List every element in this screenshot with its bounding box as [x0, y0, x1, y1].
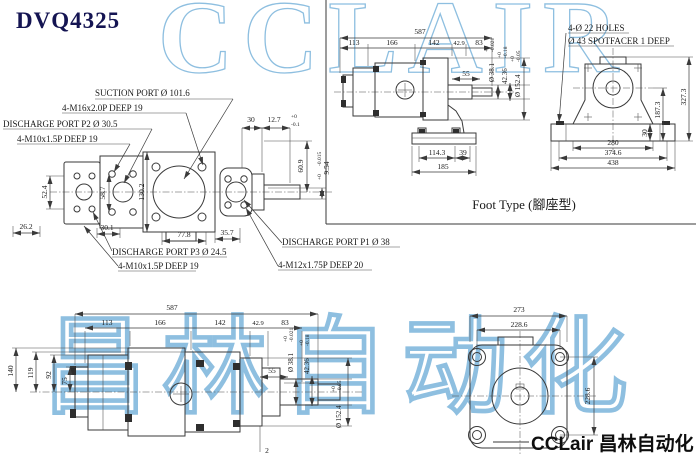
dim-spigot-side-hi: +0 — [510, 56, 516, 62]
dim-587-bottom: 587 — [166, 303, 178, 312]
dim-327-3: 327.3 — [679, 88, 688, 105]
dim-113-side: 113 — [349, 38, 360, 47]
label-spotface: Ø 43 SPOTFACER 1 DEEP — [568, 36, 670, 46]
label-holes: 4-Ø 22 HOLES — [568, 23, 625, 33]
foot-front-view: 4-Ø 22 HOLES Ø 43 SPOTFACER 1 DEEP — [551, 23, 675, 152]
dim-shaft-dia-bottom: Ø 38.1 — [287, 352, 295, 372]
dim-shaft-dia-side: Ø 38.1 — [488, 62, 496, 82]
flange-view-dimensions: 273 228.6 228.6 — [470, 305, 598, 442]
label-discharge-p1: DISCHARGE PORT P1 Ø 38 — [282, 237, 390, 247]
dim-26-2: 26.2 — [19, 222, 32, 231]
dim-spigot-side: Ø 152.4 — [514, 74, 522, 97]
dim-55-side: 55 — [462, 69, 470, 78]
dim-92: 92 — [44, 371, 53, 379]
dim-228-6-top: 228.6 — [511, 320, 528, 329]
dim-75: 75 — [60, 377, 69, 385]
label-p2-bolts: 4-M10x1.5P DEEP 19 — [17, 134, 98, 144]
foot-front-dimensions: 280 374.6 438 30 187.3 327.3 — [551, 57, 693, 171]
dim-shaft-dia-side-lo: -0.021 — [490, 38, 496, 52]
dim-166-side: 166 — [386, 38, 398, 47]
dim-12-7-tol-hi: +0 — [291, 114, 297, 120]
dim-77-8: 77.8 — [177, 230, 190, 239]
dim-52-4: 52.4 — [40, 185, 49, 198]
dim-30: 30 — [247, 115, 255, 124]
dim-9-54-tol-lo: -0.015 — [317, 152, 323, 166]
foot-side-view — [326, 0, 696, 224]
front-view — [50, 152, 332, 241]
dim-42-9-side: 42.9 — [453, 40, 464, 47]
dim-key-side: 42.36 — [501, 68, 509, 84]
company-logo-text: CCLair 昌林自动化 — [531, 429, 694, 456]
dim-spigot-bottom-hi: +0 — [331, 386, 337, 392]
dim-113-bottom: 113 — [102, 318, 113, 327]
dim-58-7: 58.7 — [98, 186, 107, 199]
dim-key-bottom-lo: -0.18 — [305, 334, 311, 346]
dim-key-side-lo: -0.18 — [503, 46, 509, 58]
dim-438: 438 — [607, 158, 619, 167]
dim-228-6-right: 228.6 — [583, 387, 592, 404]
dim-119: 119 — [26, 367, 35, 378]
drawing-canvas: 52.4 26.2 30.1 58.7 130.2 77.8 35.7 30 1… — [0, 0, 696, 466]
label-discharge-p2: DISCHARGE PORT P2 Ø 30.5 — [3, 119, 118, 129]
dim-key-bottom: 42.36 — [303, 358, 311, 374]
dim-55-bottom: 55 — [268, 366, 276, 375]
dim-spigot-bottom-lo: -0.05 — [337, 380, 343, 392]
dim-60-9: 60.9 — [296, 159, 305, 172]
dim-273: 273 — [513, 305, 525, 314]
label-p1-bolts: 4-M12x1.75P DEEP 20 — [278, 260, 364, 270]
dim-374-6: 374.6 — [605, 148, 622, 157]
dim-12-7-tol-lo: -0.1 — [291, 122, 300, 128]
dim-83-side: 83 — [475, 38, 483, 47]
dim-30-base: 30 — [640, 129, 649, 137]
dim-185: 185 — [437, 162, 449, 171]
dim-140: 140 — [6, 365, 15, 377]
dim-114-3: 114.3 — [429, 148, 446, 157]
dim-35-7: 35.7 — [220, 228, 233, 237]
label-discharge-p3: DISCHARGE PORT P3 Ø 24.5 — [112, 247, 227, 257]
dim-9-54-tol-hi: +0 — [317, 174, 323, 180]
dim-83-bottom: 83 — [281, 318, 289, 327]
dim-key-side-hi: +0 — [497, 52, 503, 58]
dim-shaft-dia-bottom-hi: +0 — [283, 336, 289, 342]
dim-2: 2 — [265, 446, 269, 455]
foot-type-caption: Foot Type (腳座型) — [472, 197, 576, 212]
dim-spigot-side-lo: -0.05 — [516, 50, 522, 62]
drawing-page: CCLAIR 昌林自动化 DVQ4325 — [0, 0, 696, 466]
label-p3-bolts: 4-M10x1.5P DEEP 19 — [118, 261, 199, 271]
dim-key-bottom-hi: +0 — [299, 340, 305, 346]
label-suction-port: SUCTION PORT Ø 101.6 — [95, 88, 190, 98]
dim-39: 39 — [459, 148, 467, 157]
dim-shaft-dia-side-hi: +0 — [484, 46, 490, 52]
dim-spigot-bottom: Ø 152.4 — [335, 405, 343, 428]
foot-side-dimensions: 587 113 166 142 42.9 83 55 Ø 38.1 -0.021… — [340, 27, 576, 212]
label-suction-bolts: 4-M16x2.0P DEEP 19 — [62, 103, 143, 113]
dim-587-side: 587 — [414, 27, 426, 36]
dim-166-bottom: 166 — [154, 318, 166, 327]
dim-12-7: 12.7 — [267, 115, 280, 124]
dim-42-9-bottom: 42.9 — [252, 320, 263, 327]
dim-142-side: 142 — [428, 38, 440, 47]
dim-187-3: 187.3 — [653, 101, 662, 118]
dim-130-2: 130.2 — [137, 183, 146, 200]
dim-280: 280 — [607, 138, 619, 147]
dim-142-bottom: 142 — [214, 318, 226, 327]
dim-shaft-dia-bottom-lo: -0.021 — [289, 328, 295, 342]
